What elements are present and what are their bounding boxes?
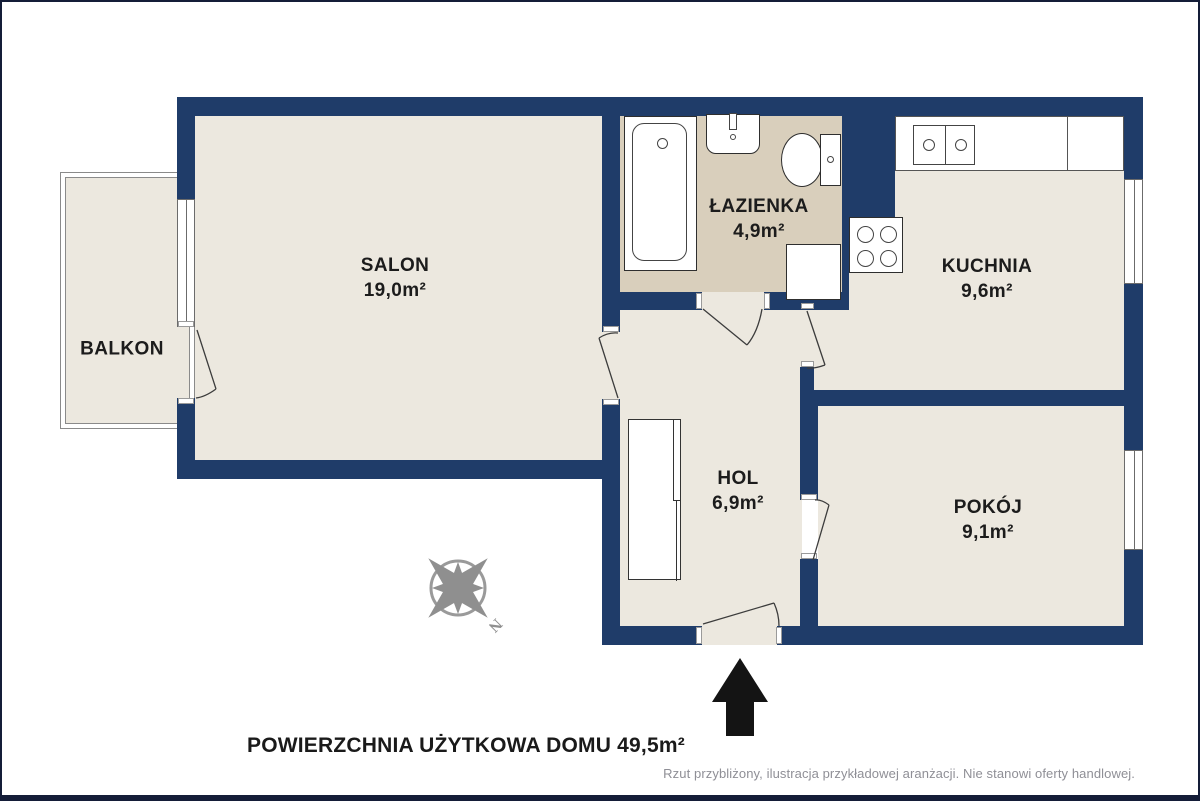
entrance-arrow-icon: [702, 654, 778, 740]
door-swings-layer: [2, 2, 1200, 801]
room-area: 19,0m²: [361, 278, 430, 303]
room-area: 9,6m²: [942, 279, 1032, 304]
entrance-door: [703, 603, 779, 626]
compass-north-label: N: [485, 615, 506, 636]
compass-rose-icon: N: [404, 534, 516, 646]
kitchen-door: [807, 311, 825, 368]
floor-plan-page: N SALON 19,0m² ŁAZIENKA 4,9m² KUCHNIA 9,…: [0, 0, 1200, 801]
room-name: HOL: [712, 466, 764, 491]
room-label-kuchnia: KUCHNIA 9,6m²: [942, 254, 1032, 304]
bathroom-door: [703, 309, 762, 345]
balcony-door: [196, 330, 216, 398]
room-name: BALKON: [80, 337, 164, 362]
room-name: ŁAZIENKA: [709, 194, 808, 219]
room-label-hol: HOL 6,9m²: [712, 466, 764, 516]
salon-door: [599, 333, 618, 398]
room-area: 9,1m²: [954, 520, 1023, 545]
room-name: SALON: [361, 253, 430, 278]
bottom-frame-bar: [2, 795, 1198, 799]
room-name: POKÓJ: [954, 495, 1023, 520]
room-name: KUCHNIA: [942, 254, 1032, 279]
total-area-label: POWIERZCHNIA UŻYTKOWA DOMU 49,5m²: [247, 734, 685, 758]
room-label-pokoj: POKÓJ 9,1m²: [954, 495, 1023, 545]
room-label-salon: SALON 19,0m²: [361, 253, 430, 303]
room-door: [813, 500, 829, 560]
room-area: 6,9m²: [712, 491, 764, 516]
room-label-balkon: BALKON: [80, 337, 164, 362]
disclaimer-text: Rzut przybliżony, ilustracja przykładowe…: [663, 766, 1135, 781]
room-area: 4,9m²: [709, 219, 808, 244]
room-label-lazienka: ŁAZIENKA 4,9m²: [709, 194, 808, 244]
